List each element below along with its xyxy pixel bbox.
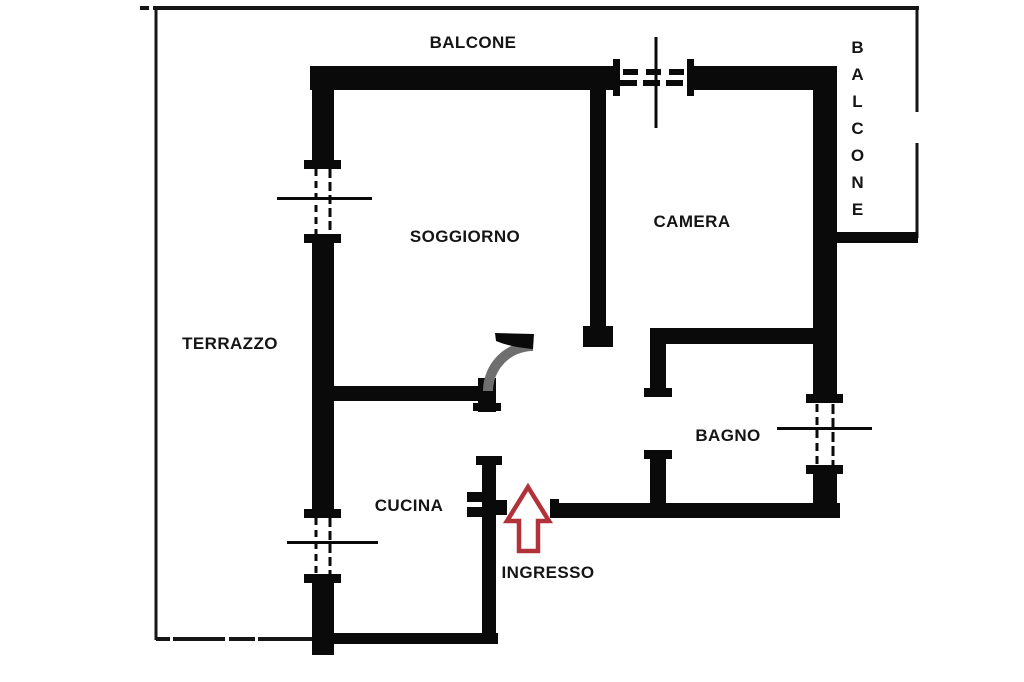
wall-hall-bagno-upper bbox=[650, 330, 666, 390]
wall-soggiorno-cucina bbox=[334, 386, 480, 401]
room-label-terrazzo: TERRAZZO bbox=[182, 334, 278, 354]
room-label-bagno: BAGNO bbox=[695, 426, 760, 446]
window-cap bbox=[806, 394, 843, 403]
window-jamb bbox=[613, 59, 620, 96]
window-glazing-lines bbox=[316, 37, 833, 574]
wall-bottom-hall-bagno bbox=[550, 503, 840, 518]
window-sill-line bbox=[287, 541, 378, 544]
wall-divider-soggiorno-camera-cap bbox=[583, 326, 613, 347]
wall-divider-soggiorno-camera bbox=[590, 88, 606, 328]
wall-top bbox=[310, 66, 837, 90]
arrow-up-shape bbox=[507, 487, 549, 551]
door-jamb-tab-right bbox=[494, 500, 507, 515]
window-cap bbox=[304, 160, 341, 169]
window-opening-cucina-left bbox=[308, 518, 336, 576]
room-label-cucina: CUCINA bbox=[375, 496, 444, 516]
wall-soggiorno-cucina-jamb-flare bbox=[473, 403, 501, 411]
window-cap bbox=[304, 574, 341, 583]
wall-cucina-bottom bbox=[312, 633, 498, 644]
room-label-soggiorno: SOGGIORNO bbox=[410, 227, 520, 247]
window-cap bbox=[304, 234, 341, 243]
wall-cucina-ingresso-cap bbox=[476, 456, 502, 465]
window-opening-bagno-right bbox=[811, 403, 839, 467]
window-opening-camera-top bbox=[620, 62, 687, 94]
walls bbox=[310, 66, 918, 655]
room-label-ingresso: INGRESSO bbox=[502, 563, 595, 583]
room-label-balcone-right: BALCONE bbox=[849, 38, 866, 227]
door-jamb-tab-left-lower bbox=[467, 507, 482, 517]
window-jamb bbox=[687, 59, 694, 96]
window-opening-soggiorno-left bbox=[308, 168, 336, 236]
wall-hall-bagno-lower-cap bbox=[644, 450, 672, 459]
room-label-camera: CAMERA bbox=[653, 212, 730, 232]
entrance-arrow-icon bbox=[507, 487, 549, 551]
wall-hall-bagno-upper-cap bbox=[644, 388, 672, 397]
wall-camera-bagno bbox=[650, 328, 815, 344]
wall-bottom-left-stub bbox=[550, 499, 559, 518]
window-cap bbox=[304, 509, 341, 518]
room-label-balcone-top: BALCONE bbox=[430, 33, 517, 53]
door-jamb-tab-left-upper bbox=[467, 492, 482, 502]
window-cap bbox=[806, 465, 843, 474]
window-sill-line bbox=[277, 197, 372, 200]
floorplan-page: BALCONE BALCONE SOGGIORNO CAMERA TERRAZZ… bbox=[0, 0, 1024, 682]
wall-cucina-ingresso bbox=[482, 457, 496, 643]
window-sill-line bbox=[777, 427, 872, 430]
wall-balcony-right-bottom bbox=[833, 232, 918, 243]
